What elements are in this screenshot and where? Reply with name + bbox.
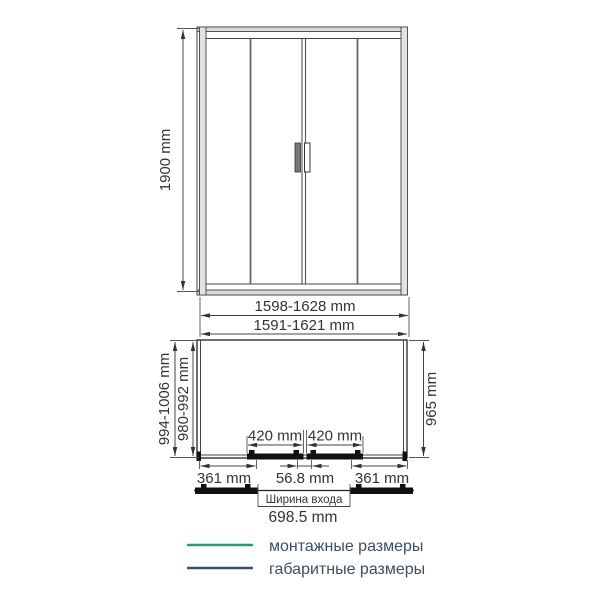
plan-view: 420 mm 420 mm 361 mm 56.8 mm 361 mm	[156, 340, 440, 526]
entrance-caption: Ширина входа	[266, 494, 343, 506]
entrance-width-value: 698.5 mm	[269, 509, 338, 526]
dim-center-overlap-label: 56.8 mm	[276, 470, 334, 487]
dim-height-label: 1900 mm	[157, 129, 174, 192]
right-profile	[401, 27, 408, 295]
legend: монтажные размеры габаритные размеры	[187, 538, 425, 578]
roller	[355, 450, 361, 455]
rail-end-cap-right	[403, 452, 408, 462]
dim-overall-width-label: 1598-1628 mm	[255, 298, 356, 315]
dim-side-depth-label: 965 mm	[423, 372, 440, 426]
dim-overall-depth-label: 994-1006 mm	[156, 353, 173, 446]
legend-mounting-label: монтажные размеры	[269, 538, 423, 555]
technical-drawing-page: 1900 mm 1598-1628 mm 1591-1621 mm	[0, 0, 600, 600]
dim-height: 1900 mm	[157, 29, 199, 292]
dim-bottom-row: 361 mm 56.8 mm 361 mm	[197, 460, 409, 487]
roller	[249, 450, 255, 455]
roller	[294, 450, 300, 455]
front-view: 1900 mm	[157, 27, 408, 295]
dim-door-panel-left-label: 420 mm	[248, 428, 302, 445]
rail-end-cap-left	[197, 452, 202, 462]
roller	[400, 484, 406, 489]
roller	[245, 484, 251, 489]
roller	[356, 484, 362, 489]
dim-depth-left: 994-1006 mm 980-992 mm	[156, 341, 199, 458]
roller	[311, 450, 317, 455]
legend-overall-label: габаритные размеры	[269, 561, 425, 578]
left-profile	[200, 27, 207, 295]
dim-door-panel-right-label: 420 mm	[308, 428, 362, 445]
bottom-profile	[197, 290, 407, 295]
dim-mounting-width-label: 1591-1621 mm	[254, 317, 355, 334]
door-handle-right	[305, 143, 311, 172]
dim-side-depth: 965 mm	[409, 341, 440, 458]
top-profile	[197, 27, 407, 32]
roller	[201, 484, 207, 489]
door-handle-left	[295, 143, 301, 172]
width-dimensions: 1598-1628 mm 1591-1621 mm	[200, 297, 409, 337]
shower-door-drawing: 1900 mm 1598-1628 mm 1591-1621 mm	[0, 0, 600, 600]
dim-mounting-depth-label: 980-992 mm	[175, 357, 192, 441]
